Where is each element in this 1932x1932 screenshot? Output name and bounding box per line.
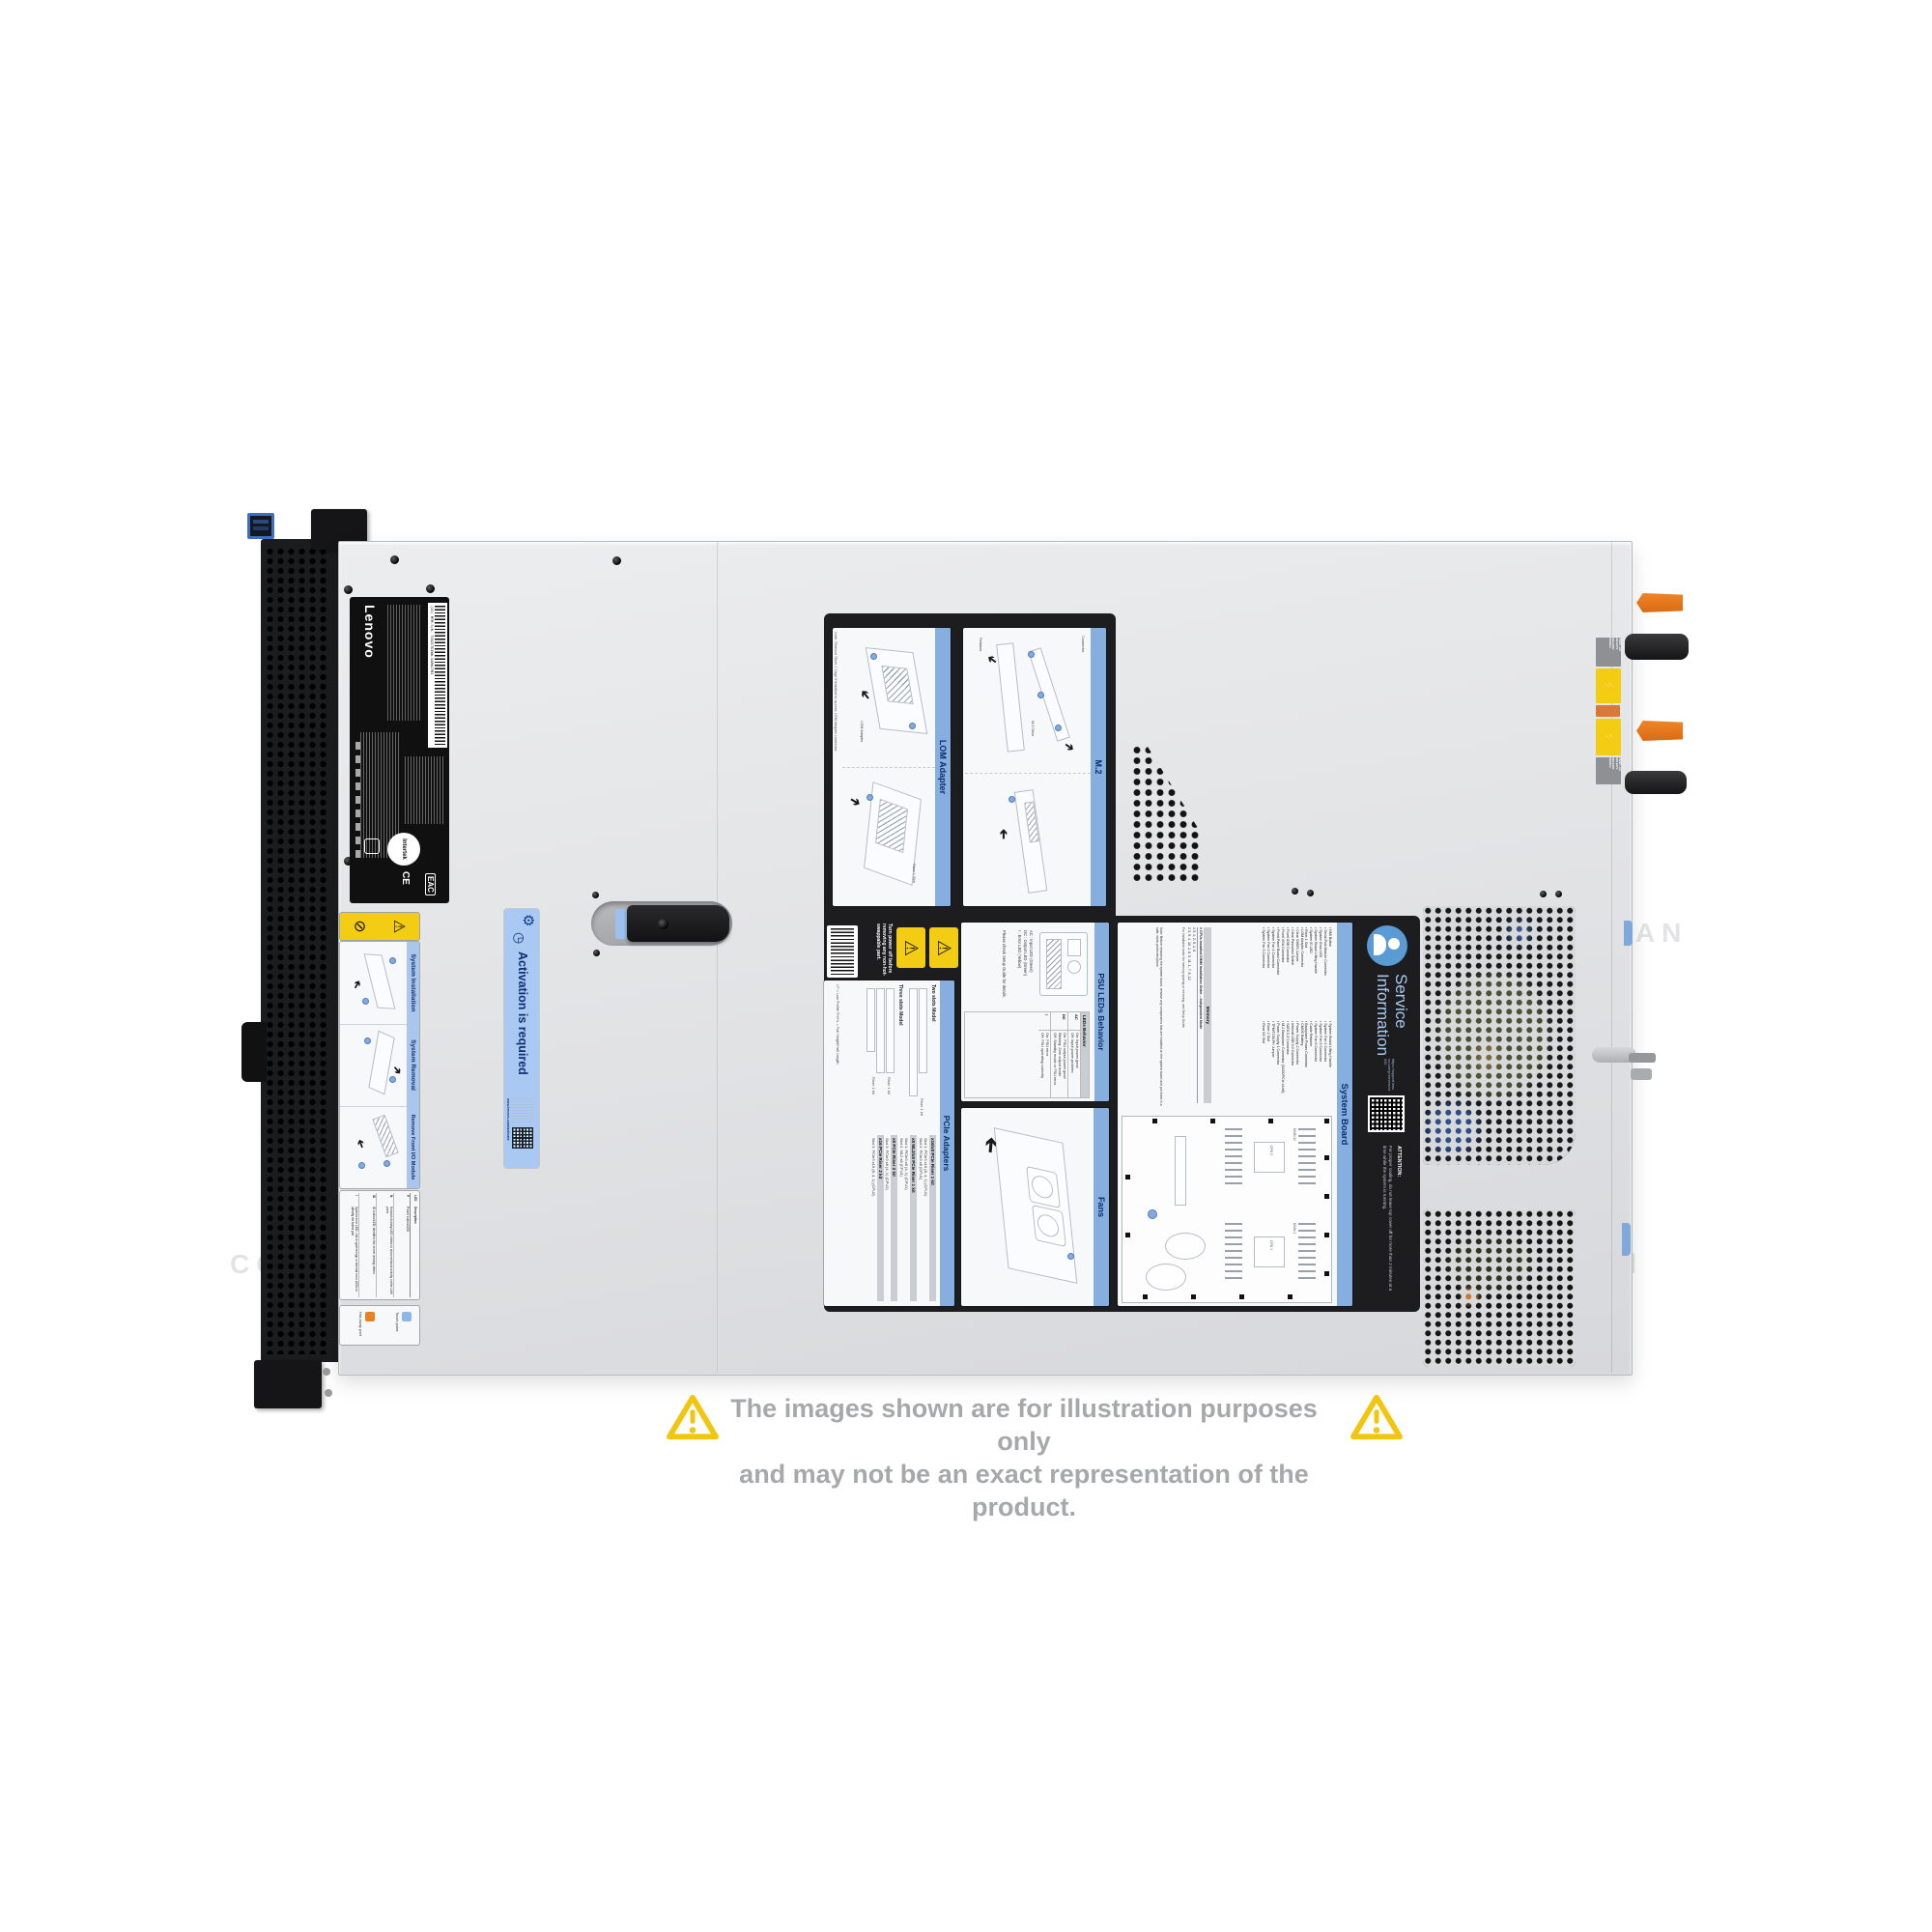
cover-release-handle xyxy=(627,905,729,942)
memory-rows: 1 3, 4, 2, 5, 1, 6 2 3, 9, 4, 10, 2, 8, … xyxy=(1185,927,1197,1103)
direction-arrow: ➔ xyxy=(857,687,873,703)
fans-card: Fans ➔ xyxy=(961,1108,1109,1306)
psu2-handle xyxy=(1625,771,1687,794)
lenovo-agency-label: (1S) MTM-S/N: 7X02CTO1WW-SA8WJ7B3 Lenovo… xyxy=(350,597,449,903)
led-key: ! xyxy=(355,1195,358,1196)
kit-slots: Slot 3: PCIe3 x16 (8, 4, 1) (CPU2) xyxy=(870,1135,877,1301)
recycle-icon xyxy=(364,838,380,854)
dimm-label: DIMM 12 xyxy=(1293,1128,1296,1141)
riser1-kit-label: Riser 1 kit xyxy=(920,1098,924,1116)
m2-card: M.2 Connector ➔ ➔ M.2 Drive Retainer ➔ xyxy=(963,628,1106,906)
m2-connector-label: Connector xyxy=(1081,636,1085,653)
lom-cage-grid xyxy=(875,799,908,853)
slot-sketch xyxy=(876,988,885,1073)
direction-arrow: ➔ xyxy=(355,1137,368,1149)
front-led-table-label: LED Description P Power button/LED N Net… xyxy=(340,1191,419,1299)
cover-hole xyxy=(1307,890,1314,896)
dimm-bank xyxy=(1298,1128,1316,1184)
slot-sketch xyxy=(886,988,895,1073)
kit-name: x16 PCIe Riser 2 kit xyxy=(877,1135,884,1301)
product-photo-scene: COMPAN COMPAN COMPAN COMPAN COMPAN COMPA… xyxy=(0,0,1932,1932)
cpu-label: CPU 1 xyxy=(1269,1240,1273,1250)
clock-icon: ◷ xyxy=(511,932,527,944)
front-instruction-label: System Installation ➔ System Removal ➔ R… xyxy=(340,942,419,1188)
direction-arrow: ➔ xyxy=(997,829,1009,839)
psu2-spec-label: 750W ~AC 100-127V 200-240V 50/60Hz xyxy=(1596,757,1621,784)
riser-slot-label: Riser 1 Slot xyxy=(912,864,916,883)
psu-led-callouts: AC : Input LED (Green) DC : Output LED (… xyxy=(1016,930,1034,976)
kit-slots: Slot 1: PCIe3 x16 (8, 4, 1) (CPU1) Slot … xyxy=(917,1135,929,1301)
section-header: Remove Front I/O Module xyxy=(407,1106,419,1188)
psu-led-val: On: PSU error Off: PSU operating correct… xyxy=(1038,1031,1050,1097)
dimm-bank xyxy=(1298,1223,1316,1279)
slot-sketch xyxy=(919,988,927,1073)
service-title-line1: Service xyxy=(1392,974,1410,1056)
dimm-bank xyxy=(1225,1223,1242,1279)
psu-spec-text: 750W ~AC 100-127V 200-240V 50/60Hz xyxy=(1596,638,1621,667)
direction-arrow: ➔ xyxy=(848,793,864,810)
cover-screw xyxy=(1540,891,1547,897)
pcie-adapters-card: PCIe Adapters Two slots Model Riser 1 ki… xyxy=(824,980,954,1306)
psu2-release-tab xyxy=(1636,721,1683,741)
direction-arrow: ➔ xyxy=(1062,739,1076,754)
sb-items-col1: ▪ NMI Button ▪ Serial-Port-Module Connec… xyxy=(1261,927,1332,1018)
warning-icon: ⚠ xyxy=(932,939,954,955)
psu-card-title: PSU LEDs Behavior xyxy=(1097,973,1107,1050)
no-touch-icon: ⊘ xyxy=(350,920,369,932)
led-desc: Network Activity LED: blinks to show net… xyxy=(385,1207,393,1295)
activation-label: ⚙ ◷ Activation is required www.lenovo.co… xyxy=(504,909,539,1168)
rear-blue-touch-tab xyxy=(1624,921,1633,946)
desc-col-header: Description xyxy=(413,1207,417,1224)
cover-screw xyxy=(390,555,399,564)
service-information-strip: Service Information https://support.leno… xyxy=(1354,916,1420,1312)
sb-card-title: System Board xyxy=(1340,1084,1350,1146)
psu-note: Please check Setup Guide for details. xyxy=(1002,930,1007,1004)
intertek-label: Intertek xyxy=(401,838,407,860)
slot-sketch xyxy=(867,988,875,1052)
disclaimer-line2: and may not be an exact representation o… xyxy=(705,1458,1343,1523)
service-title-line2: Information xyxy=(1374,974,1392,1056)
kit-slots: Slot 1: PCIe3 x8 (4, 1) (CPU1) Slot 2: M… xyxy=(897,1135,910,1301)
board-diagram: DIMM 12 DIMM 1 CPU 2 CPU 1 xyxy=(1122,1116,1332,1303)
disclaimer-warning-icon xyxy=(1349,1392,1405,1442)
warning-triangle-label: ⚠ xyxy=(929,927,958,968)
m2-card-title: M.2 xyxy=(1094,759,1103,774)
drive-tray-latch xyxy=(241,1022,267,1082)
warning-triangle-label: ⚠ xyxy=(896,927,925,968)
led-col-header: LED xyxy=(413,1195,417,1201)
gear-icon: ⚙ xyxy=(520,914,537,926)
direction-arrow: ➔ xyxy=(980,1136,1001,1153)
warning-icon: ⚠ xyxy=(899,939,922,955)
eac-mark: EAC xyxy=(425,873,436,895)
ce-mark: CE xyxy=(400,871,411,885)
rear-vent-upper xyxy=(1423,906,1576,1165)
lom-adapter-card: LOM Adapter ➔ LOM Adapter ➔ Riser 1 Slot… xyxy=(833,628,951,906)
activation-url: www.lenovo.com/activate xyxy=(506,1098,510,1141)
section-title: System Removal xyxy=(410,1039,416,1091)
dimm-bank xyxy=(1225,1128,1242,1184)
led-key: ID xyxy=(372,1195,376,1198)
cover-seam xyxy=(717,542,719,1373)
psu-led-key: ! xyxy=(1038,1012,1050,1031)
front-legend-label: Touch point Hot-swap port xyxy=(340,1306,419,1345)
cpu-socket: CPU 2 xyxy=(1254,1142,1285,1173)
service-info-icon xyxy=(1367,925,1407,966)
power-warning-text-block: Turn power off before removing any non-h… xyxy=(860,923,893,980)
psu-rear-sketch xyxy=(1039,932,1088,996)
cover-screw xyxy=(612,556,621,565)
riser1-kit-label: Riser 1 kit xyxy=(887,1077,892,1094)
m2-backplane-sketch xyxy=(996,642,1025,752)
ear-screw xyxy=(325,1389,332,1397)
attention-title: ATTENTION: xyxy=(1396,1146,1402,1177)
lom-note: Note: Remove Riser 1 Cage if installed t… xyxy=(834,632,838,902)
riser2-kit-label: Riser 2 kit xyxy=(871,1077,876,1094)
psu1-release-tab xyxy=(1636,593,1683,612)
touch-point-label: Touch point xyxy=(395,1312,400,1341)
rear-latch-screw xyxy=(1631,1068,1652,1080)
kit-slots: Slot 3: PCIe3 x8 (4, 1) (CPU2) xyxy=(884,1135,891,1301)
hazard-icon: ⚡ xyxy=(1602,679,1615,694)
rear-blue-touch-tab xyxy=(1622,1223,1631,1256)
vent-hole-grid xyxy=(1423,1209,1576,1367)
rear-vent-lower xyxy=(1423,1209,1576,1367)
lom-card-title: LOM Adapter xyxy=(938,740,948,794)
activation-micro-text xyxy=(510,1098,533,1123)
regulatory-micro-text xyxy=(387,605,420,721)
vent-hole-grid xyxy=(1423,906,1576,1165)
psu-led-key: AC xyxy=(1068,1012,1080,1031)
memory-title: Memory xyxy=(1204,927,1211,1103)
m2-retainer-label: Retainer xyxy=(979,638,982,651)
panel-barcode xyxy=(827,925,858,978)
led-desc: ID button/LED: identifies the server amo… xyxy=(372,1207,376,1295)
handle-screw xyxy=(658,919,668,929)
hazard-icon: ⚡ xyxy=(1602,730,1615,745)
section-title: System Installation xyxy=(410,953,416,1011)
riser-connector xyxy=(1175,1136,1186,1206)
serial-barcode: (1S) MTM-S/N: 7X02CTO1WW-SA8WJ7B3 xyxy=(428,603,447,748)
psu-connector xyxy=(1146,1264,1186,1291)
pcie-card-title: PCIe Adapters xyxy=(943,1116,952,1172)
psu1-warning-label: ⚡ xyxy=(1596,668,1621,703)
led-desc: System error LED: check system logs or i… xyxy=(351,1207,358,1295)
section-title: Remove Front I/O Module xyxy=(411,1115,416,1180)
activation-title: Activation is required xyxy=(516,952,529,1075)
cpu-socket: CPU 1 xyxy=(1254,1236,1285,1267)
three-slots-model-label: Three slots Model xyxy=(897,984,903,1026)
kit-name: x8 PCIe Riser 2 kit xyxy=(891,1135,897,1301)
io-module-sketch xyxy=(372,1115,399,1157)
kit-name: x16/x8 PCIe Riser 1 kit xyxy=(929,1135,936,1301)
dimm-label: DIMM 1 xyxy=(1293,1223,1296,1234)
lenovo-logo: Lenovo xyxy=(362,605,378,659)
cover-seam-rear xyxy=(1611,542,1612,1373)
kit-name: x8 ML2/x8 PCIe Riser 1 kit xyxy=(910,1135,917,1301)
led-key: N xyxy=(389,1195,393,1197)
memory-header: # CPUs Installed DIMM Installation Order… xyxy=(1197,927,1204,1103)
direction-arrow: ➔ xyxy=(984,652,999,668)
psu-leds-card: PSU LEDs Behavior AC : Input LED (Green)… xyxy=(961,923,1109,1101)
pcie-legend: LP = Low Profile FH/HL = Full Height/Hal… xyxy=(836,984,839,1129)
cover-hole xyxy=(1292,888,1298,895)
cover-hole xyxy=(593,950,600,956)
power-warning-text: Turn power off before removing any non-h… xyxy=(860,923,893,980)
psu-led-val: On: Input power good Off: Input power pr… xyxy=(1068,1031,1080,1097)
caution-triangle-icon: ⚠ xyxy=(389,920,409,933)
hot-swap-swatch xyxy=(365,1312,375,1321)
touch-point-swatch xyxy=(402,1312,412,1321)
slot-sketch xyxy=(909,988,918,1096)
psu-connector xyxy=(1165,1233,1206,1260)
psu1-handle xyxy=(1625,634,1689,660)
cover-screw xyxy=(1555,891,1562,897)
psu-table-title: LEDs Behavior xyxy=(1081,1012,1089,1097)
lom-sketch-label: LOM Adapter xyxy=(860,721,864,742)
intertek-cert-badge: Intertek xyxy=(387,833,420,866)
two-slots-model-label: Two slots Model xyxy=(930,984,936,1022)
ear-screw xyxy=(323,1368,330,1376)
led-key: P xyxy=(406,1195,410,1197)
cover-screw xyxy=(426,584,435,593)
hot-swap-label: Hot-swap port xyxy=(358,1312,363,1341)
section-header: System Installation xyxy=(407,942,419,1024)
psu1-spec-label: 750W ~AC 100-127V 200-240V 50/60Hz xyxy=(1596,638,1621,667)
serial-barcode-text: (1S) MTM-S/N: 7X02CTO1WW-SA8WJ7B3 xyxy=(430,606,434,745)
cover-hole xyxy=(592,892,599,898)
activation-qr xyxy=(512,1127,533,1149)
section-header: System Removal xyxy=(407,1024,419,1106)
system-board-card: System Board ▪ NMI Button ▪ Serial-Port-… xyxy=(1118,923,1352,1306)
direction-arrow: ➔ xyxy=(351,979,364,991)
attention-body: For proper cooling, do not leave top cov… xyxy=(1381,1146,1393,1300)
led-desc: Power button/LED xyxy=(406,1207,410,1295)
front-vga-connector xyxy=(247,513,274,539)
sb-note: Note: Before removing the system board, … xyxy=(1154,927,1163,1109)
regulatory-micro-text xyxy=(405,756,443,824)
rack-ear-bottom xyxy=(254,1360,322,1408)
cover-screw xyxy=(344,585,353,594)
psu-spec-text: 750W ~AC 100-127V 200-240V 50/60Hz xyxy=(1596,757,1621,784)
rear-orange-label xyxy=(1596,705,1620,717)
service-qr xyxy=(1368,1095,1405,1132)
disclaimer-text: The images shown are for illustration pu… xyxy=(705,1392,1343,1523)
fans-card-title: Fans xyxy=(1096,1197,1106,1217)
psu2-warning-label: ⚡ xyxy=(1596,719,1621,755)
memory-note: For installation order for memory sparin… xyxy=(1181,927,1185,1103)
m2-drive-label: M.2 Drive xyxy=(1031,721,1035,736)
cpu-label: CPU 2 xyxy=(1269,1146,1273,1155)
bezel-vent-holes xyxy=(265,547,328,1354)
cert-icon-row xyxy=(355,742,360,858)
caution-strip: ⊘ ⚠ xyxy=(340,913,419,940)
removal-sketch xyxy=(368,1031,394,1095)
psu-led-val: On: PSU output power good Blinking: Zero… xyxy=(1051,1031,1067,1097)
psu-led-key: DC xyxy=(1051,1012,1067,1031)
sb-items-col2: ▪ System Board Lifting Handle ▪ System F… xyxy=(1261,1021,1332,1112)
front-bezel-strip xyxy=(261,539,344,1362)
rear-latch-arm xyxy=(1629,1053,1656,1063)
service-url: https://support.lenovo.com/p/servers/sr6… xyxy=(1383,1059,1395,1092)
disclaimer-line1: The images shown are for illustration pu… xyxy=(705,1392,1343,1458)
